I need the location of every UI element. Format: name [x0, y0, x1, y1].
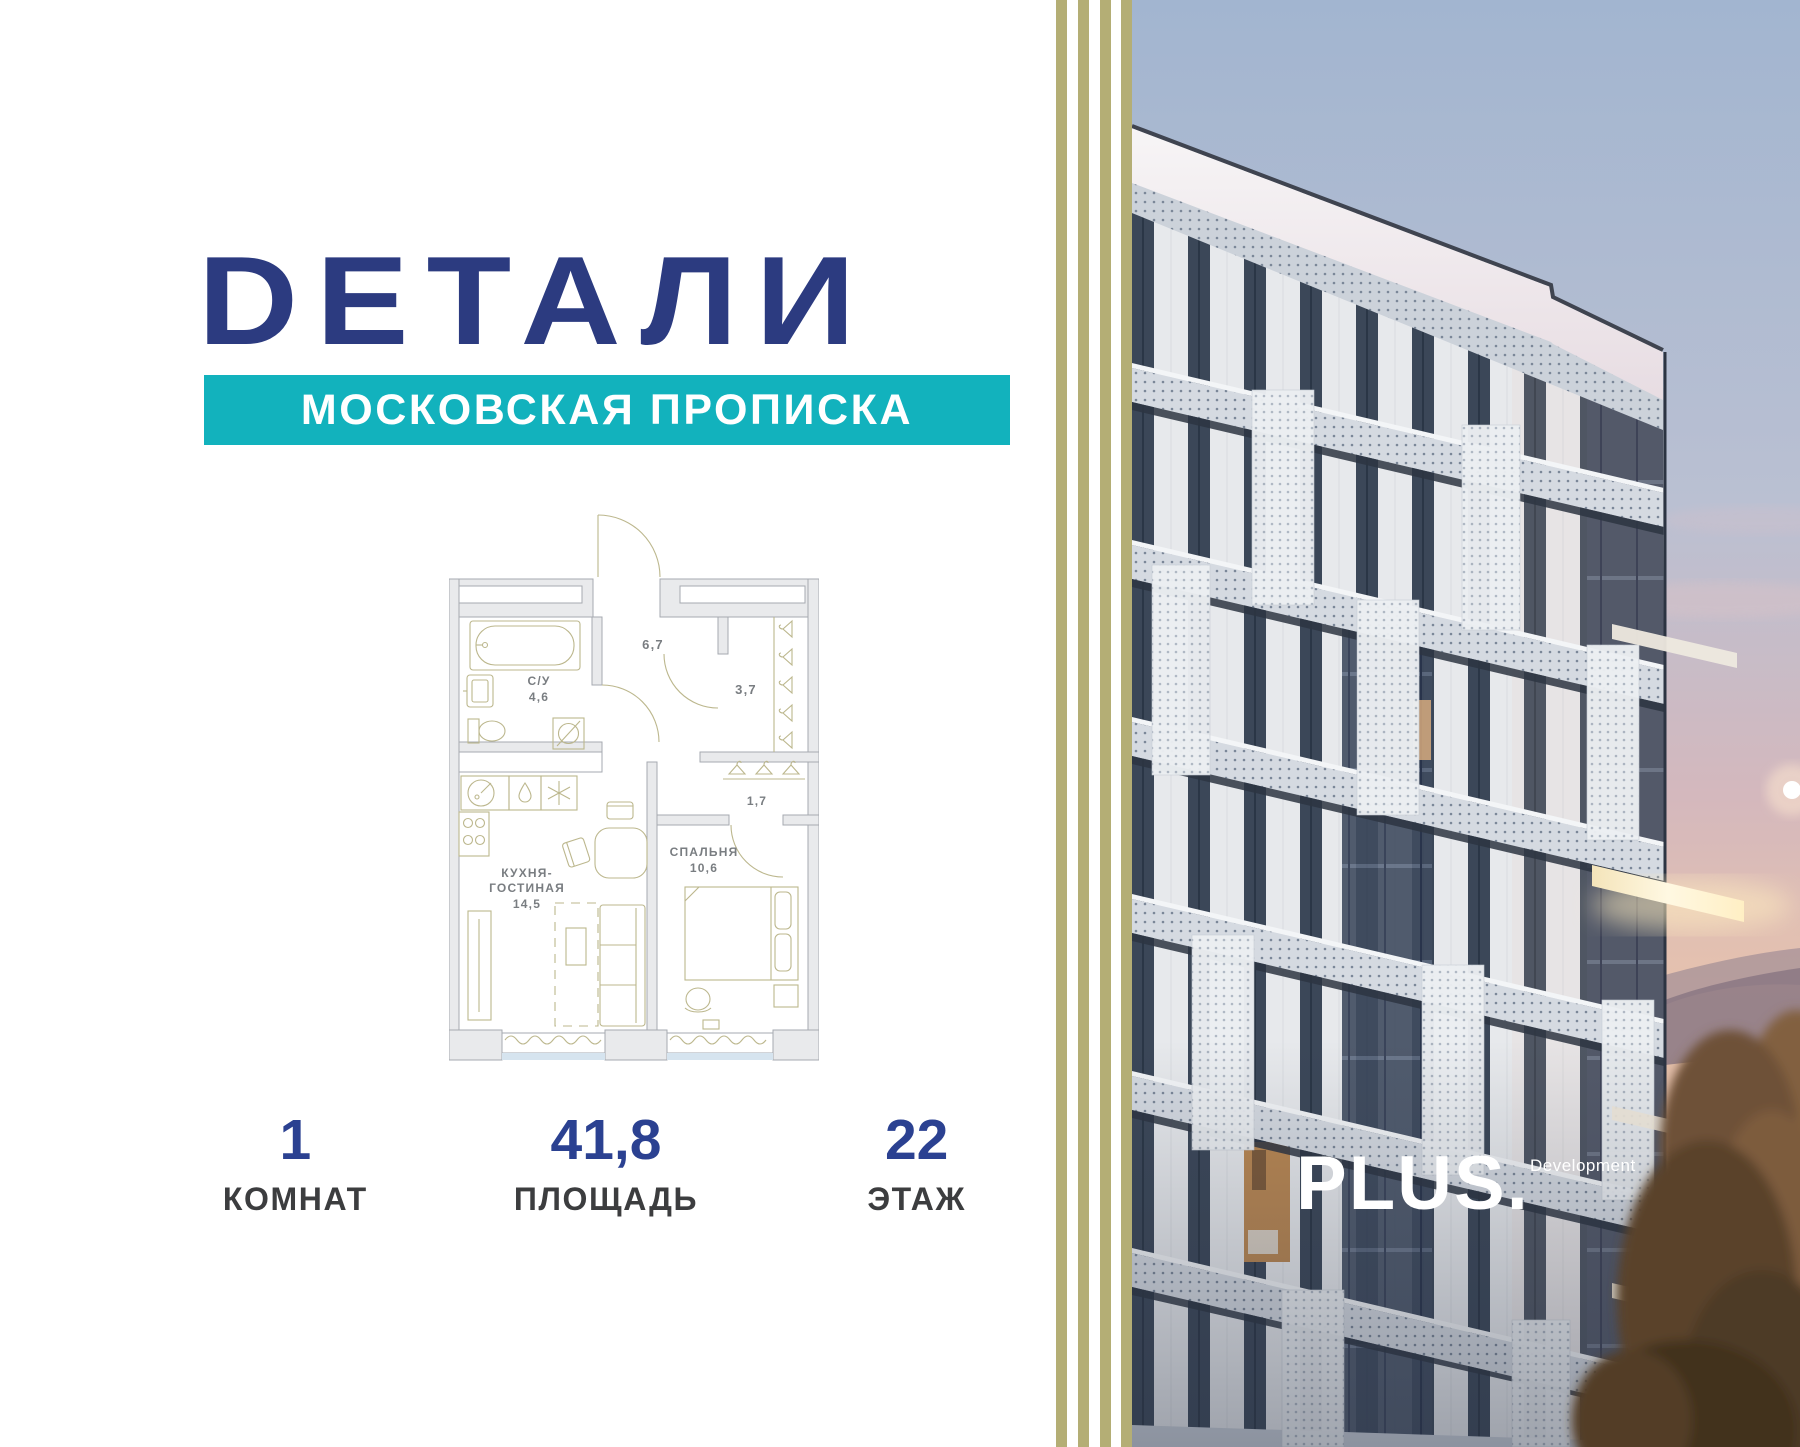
brand-subtitle-band: МОСКОВСКАЯ ПРОПИСКА [204, 375, 1010, 445]
bathroom-label: С/У [527, 674, 550, 688]
developer-descriptor: Development [1530, 1156, 1636, 1176]
rooms-value: 1 [279, 1112, 311, 1169]
fridge-icon [541, 776, 577, 810]
divider-stripe [1078, 0, 1089, 1447]
developer-name: PLUS. [1296, 1141, 1530, 1226]
bed-icon [685, 887, 798, 980]
sofa-icon [600, 905, 645, 1026]
wardrobe-hangers [774, 617, 792, 752]
closet-hangers [723, 761, 805, 779]
hob-icon [459, 812, 489, 856]
area-label: ПЛОЩАДЬ [514, 1181, 698, 1218]
area-value: 41,8 [551, 1112, 662, 1169]
promo-banner: DЕТАЛИ МОСКОВСКАЯ ПРОПИСКА [0, 0, 1800, 1447]
floorplan: С/У 4,6 6,7 3,7 1,7 СПАЛЬНЯ 10,6 КУХНЯ- … [449, 509, 819, 1061]
kitchen-label-line1: КУХНЯ- [501, 866, 553, 880]
bedroom-rug [703, 1020, 719, 1029]
stat-floor: 22 ЭТАЖ [761, 1112, 1072, 1218]
divider-stripe [1100, 0, 1111, 1447]
bathroom-area: 4,6 [529, 690, 549, 704]
kitchen-label-line2: ГОСТИНАЯ [489, 881, 565, 895]
closet-area: 1,7 [747, 794, 767, 808]
divider-stripe [1056, 0, 1067, 1447]
hall-area: 6,7 [642, 637, 664, 652]
brand-title: DЕТАЛИ [198, 238, 1100, 364]
stat-rooms: 1 КОМНАТ [140, 1112, 451, 1218]
building-photo: PLUS. Development [1132, 0, 1800, 1447]
bedroom-door-arc [731, 825, 783, 877]
brand-subtitle: МОСКОВСКАЯ ПРОПИСКА [301, 386, 913, 435]
bathtub-icon [470, 621, 580, 670]
divider-stripe [1121, 0, 1132, 1447]
rooms-label: КОМНАТ [223, 1181, 368, 1218]
bedroom-label: СПАЛЬНЯ [670, 845, 739, 859]
toilet-icon [468, 719, 505, 743]
wardrobe-area: 3,7 [735, 682, 757, 697]
bedroom-area: 10,6 [690, 861, 718, 875]
stove-icon [461, 776, 509, 810]
shelf-icon [468, 911, 491, 1020]
kitchen-area: 14,5 [513, 897, 541, 911]
sink-icon [463, 675, 493, 707]
dining-table-icon [562, 802, 647, 878]
plan-walls [449, 579, 819, 1060]
bathroom-door-arc [602, 685, 659, 742]
nightstand-icon [774, 985, 798, 1007]
entrance-door-icon [598, 515, 660, 577]
chair-icon [685, 988, 711, 1012]
developer-logo: PLUS. Development [1296, 1146, 1530, 1222]
kitchen-sink-icon [509, 776, 541, 810]
stat-area: 41,8 ПЛОЩАДЬ [451, 1112, 762, 1218]
tv-console-icon [566, 928, 586, 965]
stats-row: 1 КОМНАТ 41,8 ПЛОЩАДЬ 22 ЭТАЖ [140, 1112, 1072, 1218]
wardrobe-door-arc [664, 654, 718, 708]
floor-label: ЭТАЖ [867, 1181, 966, 1218]
floor-value: 22 [885, 1112, 948, 1169]
plan-windows [459, 586, 805, 1060]
